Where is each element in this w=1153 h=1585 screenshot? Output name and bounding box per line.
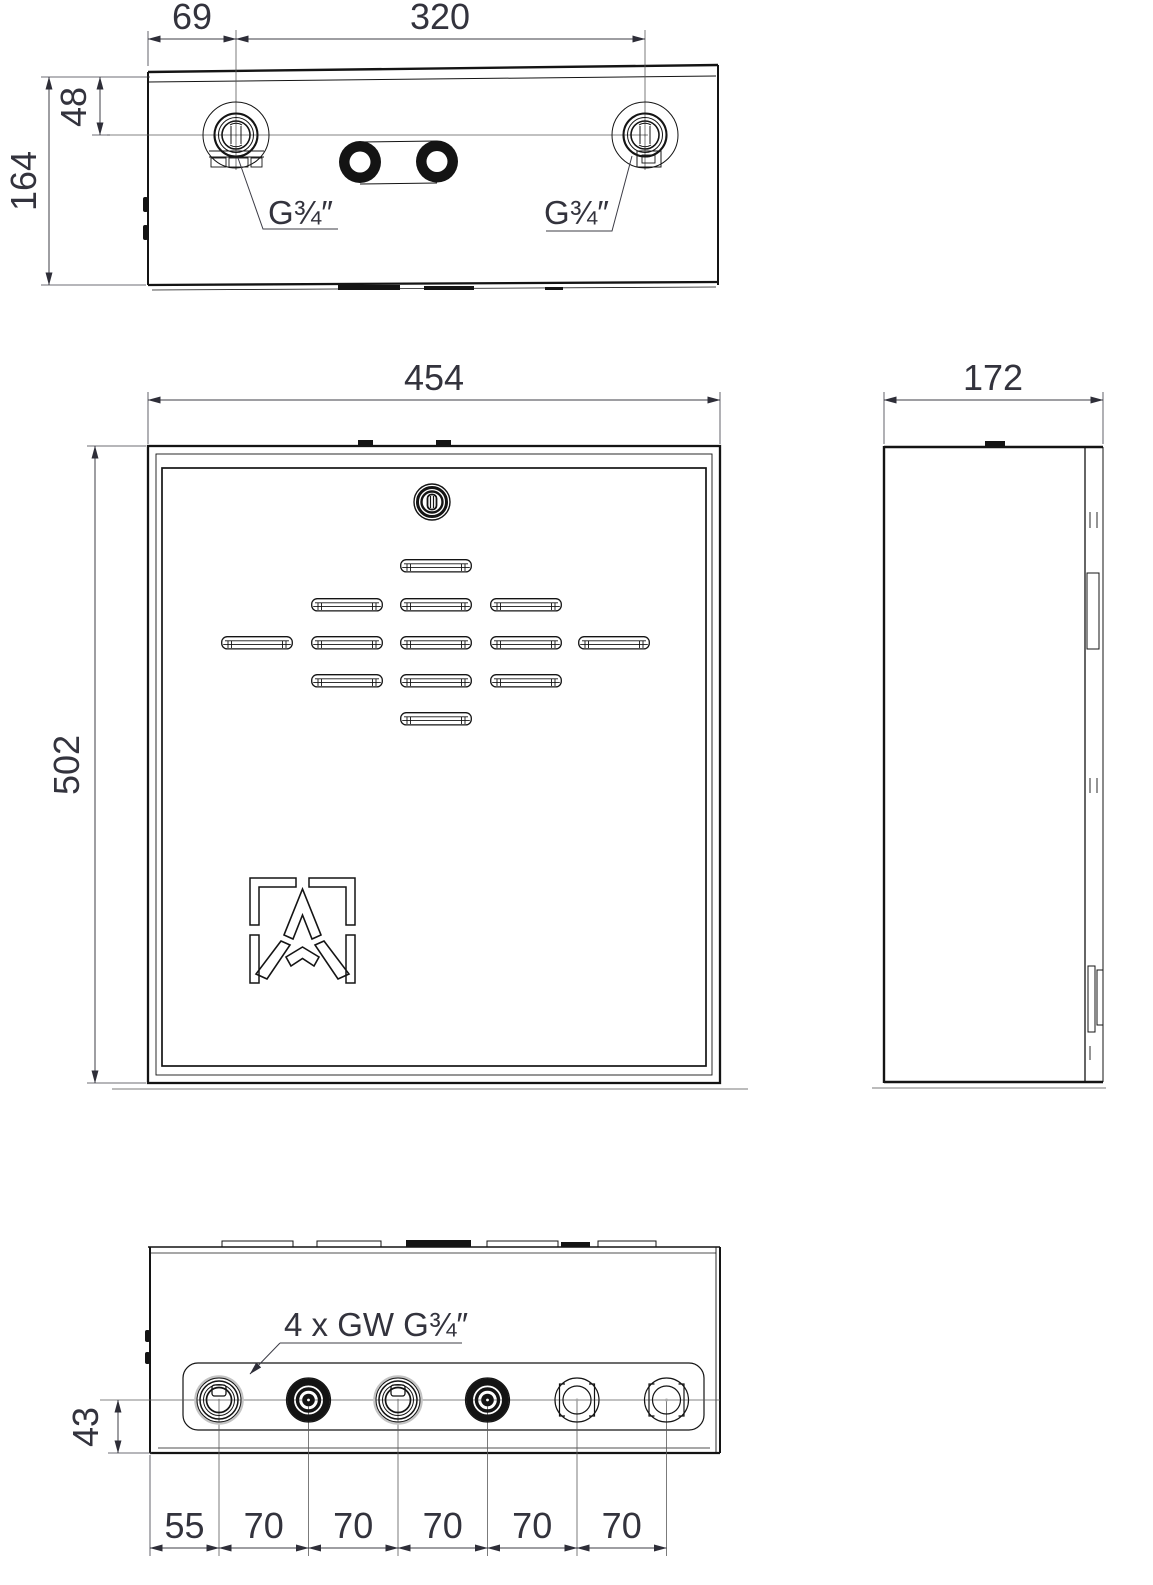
dim-label-spacing-0: 55 — [164, 1505, 204, 1546]
dimension-port-spacings: 55 70 70 70 70 70 — [150, 1505, 667, 1548]
bottom-port-centerlines — [150, 1400, 667, 1556]
vent-slot — [401, 713, 472, 725]
side-view: 172 — [872, 357, 1106, 1088]
vent-slot — [222, 637, 293, 649]
port-thread-label-right: G¾″ — [544, 194, 609, 231]
top-port-left-bracket — [209, 151, 264, 167]
top-view: G¾″ G¾″ 69 320 48 164 — [3, 0, 718, 290]
dimension-port-offset-y: 48 — [41, 77, 150, 135]
dimension-port-axis-offset: 43 — [65, 1400, 152, 1453]
dim-label-spacing-4: 70 — [512, 1505, 552, 1546]
dim-label-top-depth: 164 — [3, 151, 44, 211]
dimension-front-height: 502 — [46, 446, 146, 1083]
front-view-outline — [112, 440, 748, 1089]
dim-label-front-width: 454 — [404, 357, 464, 398]
port-thread-label-left: G¾″ — [268, 194, 333, 231]
keyhole-mounting-slot — [339, 141, 458, 185]
vent-slot — [401, 560, 472, 572]
door-lock — [414, 484, 450, 520]
side-view-outline — [872, 441, 1106, 1088]
technical-drawing-page: G¾″ G¾″ 69 320 48 164 — [0, 0, 1153, 1585]
ports-note: 4 x GW G¾″ — [250, 1306, 468, 1374]
bottom-view: 4 x GW G¾″ 43 55 70 70 70 70 70 — [65, 1240, 720, 1556]
vent-slot — [491, 675, 562, 687]
dim-label-spacing-1: 70 — [244, 1505, 284, 1546]
vent-slot — [491, 637, 562, 649]
dim-label-port-spacing: 320 — [410, 0, 470, 37]
dim-label-side-depth: 172 — [963, 357, 1023, 398]
bottom-port-2-valve — [287, 1378, 331, 1422]
dim-label-port-axis-offset: 43 — [65, 1407, 106, 1447]
vent-slot — [312, 675, 383, 687]
dim-label-port-offset-y: 48 — [53, 87, 94, 127]
dimension-side-depth: 172 — [884, 357, 1103, 444]
dim-label-front-height: 502 — [46, 735, 87, 795]
cabinet-technical-drawing: G¾″ G¾″ 69 320 48 164 — [0, 0, 1153, 1585]
vent-slot — [312, 637, 383, 649]
dim-label-port-offset-x: 69 — [172, 0, 212, 37]
ventilation-grille — [222, 560, 650, 725]
vent-slot — [312, 599, 383, 611]
vent-slot — [401, 675, 472, 687]
dimension-front-width: 454 — [148, 357, 720, 444]
vent-slot — [401, 599, 472, 611]
vent-slot — [491, 599, 562, 611]
vent-slot — [579, 637, 650, 649]
dim-label-spacing-5: 70 — [602, 1505, 642, 1546]
dim-label-spacing-3: 70 — [423, 1505, 463, 1546]
side-hinge-details — [1087, 512, 1103, 1060]
vent-slot — [401, 637, 472, 649]
dim-label-spacing-2: 70 — [333, 1505, 373, 1546]
front-view: 454 502 — [46, 357, 748, 1089]
ports-note-label: 4 x GW G¾″ — [284, 1306, 468, 1343]
bottom-port-4-valve — [466, 1378, 510, 1422]
brand-logo-stencil — [250, 878, 355, 983]
dimension-port-offset-x: 69 — [148, 0, 236, 66]
dimension-port-spacing: 320 — [236, 0, 645, 39]
